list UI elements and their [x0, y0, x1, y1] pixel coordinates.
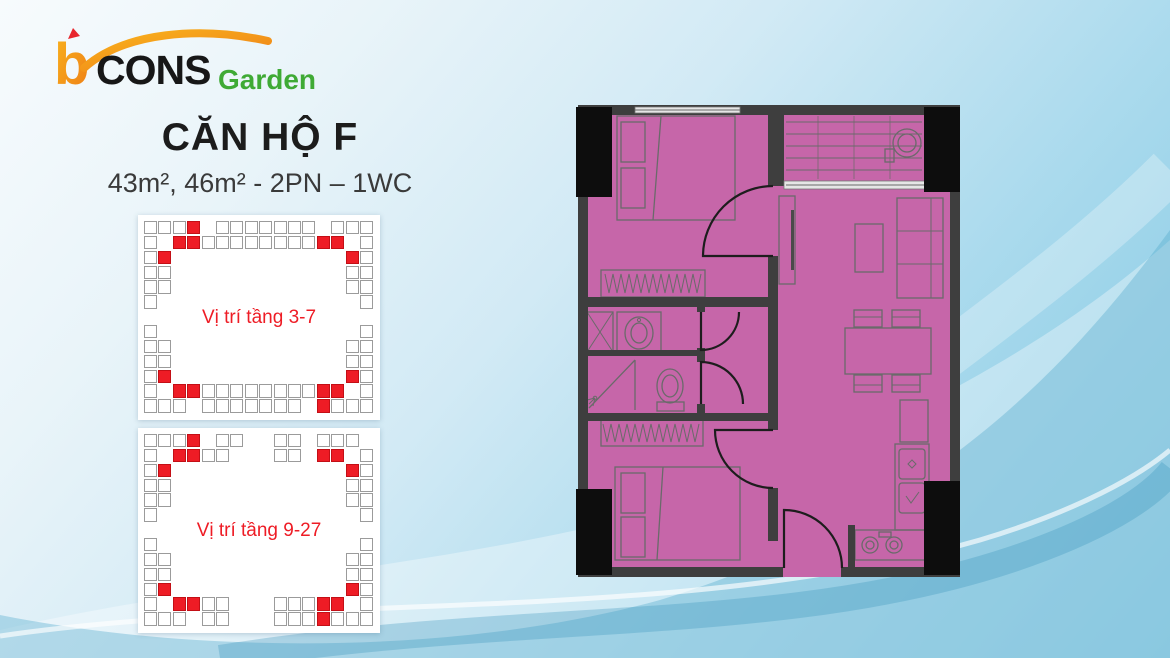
unit-cell [346, 340, 359, 353]
unit-cell [245, 221, 258, 234]
unit-cell [216, 449, 229, 462]
unit-cell [230, 384, 243, 397]
unit-cell [259, 399, 272, 412]
unit-cell [288, 449, 301, 462]
unit-cell-highlighted [346, 583, 359, 596]
unit-cell [360, 340, 373, 353]
unit-cell [331, 434, 344, 447]
unit-cell [317, 434, 330, 447]
unit-cell [346, 280, 359, 293]
unit-cell [274, 434, 287, 447]
unit-cell [144, 464, 157, 477]
unit-cell [274, 449, 287, 462]
unit-cell [216, 221, 229, 234]
unit-cell [346, 355, 359, 368]
unit-cell-highlighted [173, 449, 186, 462]
unit-cell [216, 236, 229, 249]
unit-cell-highlighted [331, 449, 344, 462]
unit-cell [216, 612, 229, 625]
unit-cell [274, 221, 287, 234]
unit-cell-highlighted [173, 384, 186, 397]
unit-cell [346, 493, 359, 506]
unit-cell [245, 384, 258, 397]
unit-cell [259, 221, 272, 234]
unit-cell-highlighted [187, 434, 200, 447]
unit-cell [144, 251, 157, 264]
unit-cell [158, 568, 171, 581]
unit-cell [202, 612, 215, 625]
unit-cell-highlighted [187, 449, 200, 462]
unit-cell [360, 251, 373, 264]
unit-cell [288, 399, 301, 412]
unit-cell [360, 493, 373, 506]
unit-cell [158, 340, 171, 353]
unit-cell [360, 355, 373, 368]
unit-cell [288, 384, 301, 397]
unit-cell [346, 553, 359, 566]
unit-cell [259, 384, 272, 397]
unit-cell [346, 221, 359, 234]
unit-cell [144, 384, 157, 397]
unit-cell [302, 236, 315, 249]
unit-cell-highlighted [187, 384, 200, 397]
unit-cell [360, 464, 373, 477]
unit-cell [144, 553, 157, 566]
unit-cell [302, 597, 315, 610]
unit-cell-highlighted [187, 221, 200, 234]
unit-cell [331, 221, 344, 234]
unit-cell [360, 597, 373, 610]
unit-cell [346, 479, 359, 492]
unit-cell [144, 479, 157, 492]
column-bottom-right [924, 481, 960, 575]
unit-cell [144, 493, 157, 506]
unit-cell [288, 597, 301, 610]
unit-cell [173, 612, 186, 625]
unit-cell-highlighted [158, 251, 171, 264]
unit-cell [158, 479, 171, 492]
unit-cell [274, 597, 287, 610]
unit-cell [144, 340, 157, 353]
unit-cell [144, 280, 157, 293]
unit-cell [216, 434, 229, 447]
unit-cell-highlighted [317, 449, 330, 462]
unit-cell-highlighted [173, 597, 186, 610]
logo-garden-text: Garden [218, 64, 316, 95]
unit-cell [360, 568, 373, 581]
unit-cell [360, 399, 373, 412]
logo: b CONS Garden [40, 26, 330, 96]
unit-cell-highlighted [346, 251, 359, 264]
unit-cell [144, 236, 157, 249]
unit-cell [274, 399, 287, 412]
unit-cell [144, 568, 157, 581]
unit-cell [144, 583, 157, 596]
unit-cell-highlighted [187, 236, 200, 249]
unit-cell-highlighted [317, 399, 330, 412]
unit-cell [144, 370, 157, 383]
column-top-right [924, 107, 960, 192]
logo-cons-text: CONS [96, 47, 210, 93]
unit-cell-highlighted [317, 236, 330, 249]
unit-cell [360, 266, 373, 279]
unit-cell [158, 612, 171, 625]
column-top-left [576, 107, 612, 197]
unit-cell [274, 612, 287, 625]
unit-cell [202, 449, 215, 462]
unit-cell [144, 399, 157, 412]
floor-range-label: Vị trí tầng 9-27 [138, 520, 380, 542]
unit-cell [274, 236, 287, 249]
unit-cell [360, 221, 373, 234]
unit-cell-highlighted [317, 597, 330, 610]
unit-cell-highlighted [317, 612, 330, 625]
unit-cell-highlighted [158, 370, 171, 383]
unit-cell-highlighted [331, 384, 344, 397]
unit-cell [360, 449, 373, 462]
floor-range-label: Vị trí tầng 3-7 [138, 307, 380, 329]
unit-cell [202, 597, 215, 610]
unit-cell [346, 612, 359, 625]
unit-cell [202, 236, 215, 249]
unit-cell-highlighted [346, 370, 359, 383]
unit-cell [230, 236, 243, 249]
apartment-specs: 43m², 46m² - 2PN – 1WC [70, 168, 450, 199]
unit-cell [360, 553, 373, 566]
unit-cell [202, 384, 215, 397]
unit-cell-highlighted [173, 236, 186, 249]
unit-cell [360, 612, 373, 625]
unit-cell [158, 266, 171, 279]
unit-cell [216, 384, 229, 397]
unit-cell [158, 355, 171, 368]
floor-location-panel-2: Vị trí tầng 9-27 [138, 428, 380, 633]
unit-cell [144, 355, 157, 368]
unit-cell [202, 399, 215, 412]
unit-cell [331, 399, 344, 412]
unit-cell [360, 583, 373, 596]
unit-cell-highlighted [331, 236, 344, 249]
unit-cell [144, 612, 157, 625]
unit-cell [274, 384, 287, 397]
unit-cell [144, 221, 157, 234]
unit-cell [302, 221, 315, 234]
unit-cell [216, 597, 229, 610]
unit-cell [230, 399, 243, 412]
unit-cell [331, 612, 344, 625]
unit-cell [144, 597, 157, 610]
unit-cell [158, 399, 171, 412]
unit-cell [360, 280, 373, 293]
unit-cell [173, 434, 186, 447]
unit-cell [302, 612, 315, 625]
unit-cell [144, 434, 157, 447]
unit-cell [346, 399, 359, 412]
unit-cell [158, 221, 171, 234]
unit-cell [360, 479, 373, 492]
unit-cell [346, 568, 359, 581]
unit-cell [158, 434, 171, 447]
unit-cell-highlighted [317, 384, 330, 397]
unit-cell [158, 280, 171, 293]
unit-cell-highlighted [158, 464, 171, 477]
unit-cell [230, 434, 243, 447]
floor-location-panel-1: Vị trí tầng 3-7 [138, 215, 380, 420]
unit-cell [173, 221, 186, 234]
unit-cell [288, 612, 301, 625]
unit-cell [259, 236, 272, 249]
unit-cell [173, 399, 186, 412]
unit-cell-highlighted [346, 464, 359, 477]
unit-cell [360, 236, 373, 249]
unit-cell [288, 221, 301, 234]
unit-cell [216, 399, 229, 412]
unit-cell [144, 449, 157, 462]
unit-cell [360, 370, 373, 383]
page-title: CĂN HỘ F [70, 116, 450, 160]
unit-cell-highlighted [187, 597, 200, 610]
slide: b CONS Garden CĂN HỘ F 43m², 46m² - 2PN … [0, 0, 1170, 658]
unit-cell [158, 493, 171, 506]
unit-cell [346, 266, 359, 279]
floorplan [573, 96, 963, 581]
unit-cell [360, 384, 373, 397]
unit-cell-highlighted [158, 583, 171, 596]
unit-cell [144, 266, 157, 279]
unit-cell [288, 434, 301, 447]
column-bottom-left [576, 489, 612, 575]
unit-cell [245, 236, 258, 249]
unit-cell [245, 399, 258, 412]
unit-cell [346, 434, 359, 447]
unit-cell [302, 384, 315, 397]
unit-cell-highlighted [331, 597, 344, 610]
unit-cell [288, 236, 301, 249]
unit-cell [158, 553, 171, 566]
unit-cell [230, 221, 243, 234]
